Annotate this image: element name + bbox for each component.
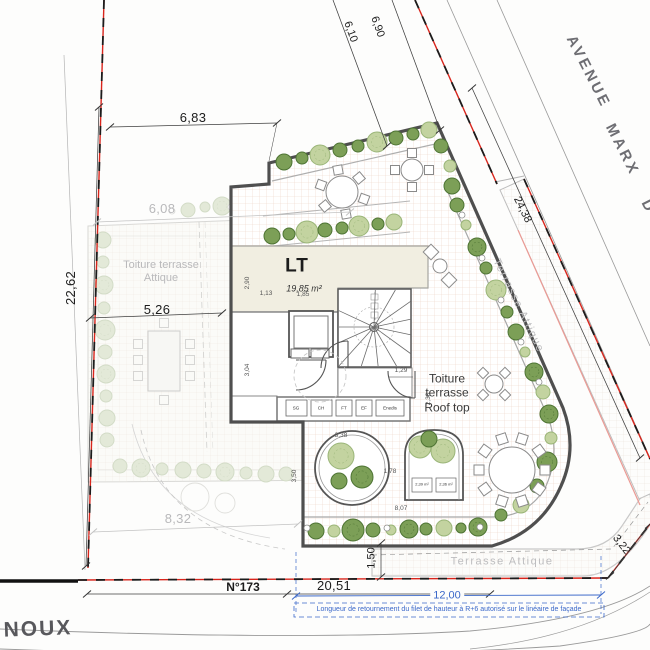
street-name-bottom: NOUX <box>3 615 73 643</box>
dim-band-height: 1,50 <box>365 547 378 568</box>
bush-icon <box>386 214 402 230</box>
bush-icon <box>216 463 234 481</box>
minor-dim-9: 1,78 <box>384 468 397 476</box>
planter-light-icon <box>384 525 390 531</box>
bush-icon <box>372 218 384 230</box>
utility-label-sg: SG <box>293 405 300 410</box>
site-plan: AVENUE MARX D NOUX N°173 6,83 22,62 6,08… <box>0 0 650 650</box>
minor-dim-7: 3,38 <box>335 432 348 440</box>
bush-icon <box>540 405 558 423</box>
area-label-attique-left: Toiture terrasse Attique <box>114 259 208 285</box>
minor-dim-4: 3,04 <box>244 364 252 377</box>
chair-icon <box>391 166 400 175</box>
minor-dim-3: 1,85 <box>297 291 310 299</box>
bush-icon <box>200 202 210 212</box>
bush-icon <box>308 523 324 539</box>
bush-icon <box>95 320 115 340</box>
dim-attique-top: 6,08 <box>149 201 176 217</box>
bush-icon <box>95 276 113 294</box>
planter-area-2: 2,36 m² <box>439 483 453 488</box>
minor-dim-6: 2,38 <box>425 393 433 406</box>
bush-icon <box>328 525 340 537</box>
utility-label-ft: FT <box>341 405 347 410</box>
chair-icon <box>134 372 143 381</box>
bush-icon <box>100 390 112 402</box>
planter-light-icon <box>518 339 524 345</box>
dim-left-height: 22,62 <box>63 271 79 305</box>
chair-icon <box>408 183 417 192</box>
bush-icon <box>536 385 550 399</box>
chair-icon <box>186 356 195 365</box>
bush-icon <box>333 143 347 157</box>
minor-dim-1: 2,90 <box>244 277 252 290</box>
bush-icon <box>461 220 471 230</box>
bush-icon <box>100 433 114 447</box>
bush-icon <box>310 145 330 165</box>
bush-icon <box>421 431 437 447</box>
bush-icon <box>421 122 437 138</box>
bush-icon <box>436 520 452 536</box>
planter-light-icon <box>479 255 485 261</box>
minor-dim-10: 8,07 <box>395 505 408 513</box>
table-icon <box>433 259 447 273</box>
dim-top-width: 6,83 <box>180 110 207 126</box>
chair-icon <box>134 340 143 349</box>
bush-icon <box>456 523 466 533</box>
bush-icon <box>99 410 115 426</box>
minor-dim-5: 1,29 <box>395 367 408 375</box>
dim-lt-width: 5,26 <box>144 302 171 318</box>
chair-icon <box>160 319 169 328</box>
bush-icon <box>283 228 295 240</box>
chair-icon <box>134 356 143 365</box>
area-label-attique-bottom: Terrasse Attique <box>451 555 554 568</box>
table-icon <box>326 176 358 208</box>
bush-icon <box>331 473 347 489</box>
bush-icon <box>468 238 486 256</box>
bush-icon <box>240 467 252 479</box>
bush-icon <box>156 463 168 475</box>
chair-icon <box>540 465 550 475</box>
chair-icon <box>160 396 169 405</box>
dim-bottom-frontage: 20,51 <box>317 578 351 594</box>
chair-icon <box>333 165 343 175</box>
minor-dim-8: 3,50 <box>291 470 299 483</box>
chair-icon <box>408 149 417 158</box>
facade-note: Longueur de retournement du filet de hau… <box>317 606 582 614</box>
room-label-lt: LT <box>285 256 309 279</box>
planter-light-icon <box>459 212 465 218</box>
bush-icon <box>450 198 464 212</box>
bush-icon <box>520 347 530 357</box>
planter-light-icon <box>304 525 310 531</box>
table-icon <box>401 159 423 181</box>
bush-icon <box>97 365 115 383</box>
utility-label-enedis: Enedis <box>383 405 397 410</box>
bush-icon <box>495 509 507 521</box>
circular-planter <box>315 431 389 505</box>
bush-icon <box>434 139 448 153</box>
bush-icon <box>342 519 364 541</box>
bush-icon <box>175 462 191 478</box>
table-icon <box>485 375 503 393</box>
bush-icon <box>132 459 150 477</box>
bush-icon <box>444 160 456 172</box>
chair-icon <box>425 166 434 175</box>
chair-icon <box>186 340 195 349</box>
bush-icon <box>181 203 195 217</box>
bush-icon <box>113 459 127 473</box>
chair-icon <box>341 209 351 219</box>
planter-light-icon <box>498 297 504 303</box>
bush-icon <box>296 152 308 164</box>
minor-dim-2: 1,13 <box>260 290 273 298</box>
bush-icon <box>407 128 419 140</box>
bush-icon <box>276 154 292 170</box>
bush-icon <box>336 222 348 234</box>
bush-icon <box>98 302 110 314</box>
chair-icon <box>474 465 484 475</box>
parcel-number: N°173 <box>226 580 260 594</box>
bush-icon <box>296 221 318 243</box>
utility-label-ch: CH <box>318 405 325 410</box>
bush-icon <box>328 443 354 469</box>
bush-icon <box>420 523 432 535</box>
bush-icon <box>352 140 364 152</box>
bush-icon <box>525 363 543 381</box>
bush-icon <box>197 464 211 478</box>
bush-icon <box>351 466 373 488</box>
bush-icon <box>400 520 418 538</box>
chair-icon <box>186 372 195 381</box>
dim-attique-bottom: 8,32 <box>165 511 192 527</box>
bush-icon <box>444 178 460 194</box>
spiral-staircase <box>338 289 411 367</box>
bush-icon <box>98 345 112 359</box>
bush-icon <box>318 223 332 237</box>
bush-icon <box>366 523 380 537</box>
dim-facade-return: 12,00 <box>430 589 464 602</box>
bush-icon <box>264 228 280 244</box>
utility-label-ef: EF <box>361 405 367 410</box>
bush-icon <box>545 432 557 444</box>
bush-icon <box>97 256 109 268</box>
planter-area-1: 2,39 m² <box>415 483 429 488</box>
planter-light-icon <box>477 524 483 530</box>
bush-icon <box>258 466 274 482</box>
plan-drawing <box>0 0 650 650</box>
planter-light-icon <box>536 379 542 385</box>
table-icon <box>489 447 535 493</box>
bush-icon <box>349 216 369 236</box>
